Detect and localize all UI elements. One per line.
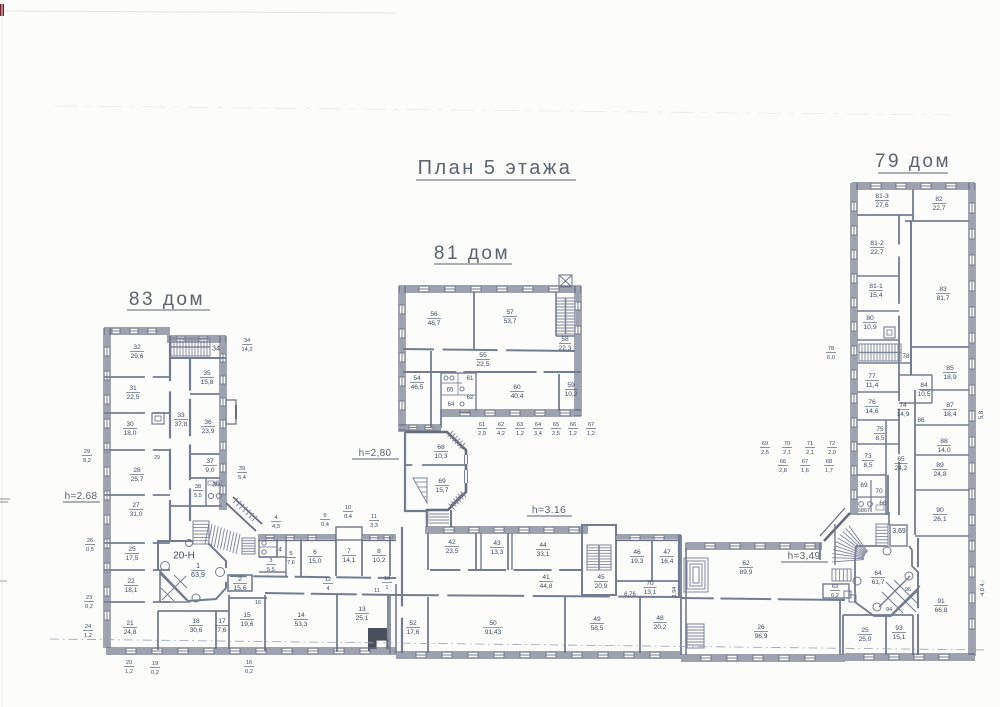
svg-text:73: 73	[864, 453, 872, 460]
svg-text:81,7: 81,7	[937, 295, 950, 302]
svg-text:76: 76	[868, 399, 876, 406]
svg-text:66: 66	[780, 459, 786, 465]
svg-text:25,7: 25,7	[131, 476, 144, 483]
svg-text:67: 67	[588, 422, 594, 428]
svg-text:2,9: 2,9	[478, 431, 486, 437]
svg-text:25: 25	[128, 546, 136, 553]
svg-text:10,2: 10,2	[373, 557, 386, 564]
svg-text:62: 62	[498, 422, 504, 428]
svg-text:82: 82	[935, 196, 943, 203]
svg-text:2: 2	[238, 576, 242, 583]
svg-text:50: 50	[489, 620, 497, 627]
svg-text:0,4: 0,4	[344, 514, 352, 520]
svg-text:6,2: 6,2	[831, 593, 839, 599]
svg-text:24,8: 24,8	[124, 629, 137, 636]
svg-text:24,2: 24,2	[895, 465, 908, 472]
svg-text:30: 30	[126, 421, 134, 428]
svg-text:44: 44	[539, 542, 547, 549]
svg-text:54: 54	[413, 375, 421, 382]
svg-text:8,5: 8,5	[875, 435, 884, 442]
svg-text:62: 62	[467, 395, 474, 401]
svg-text:20,2: 20,2	[654, 624, 667, 631]
svg-text:81-3: 81-3	[875, 193, 889, 200]
svg-text:2,0: 2,0	[828, 450, 836, 456]
svg-text:20-Н: 20-Н	[173, 551, 195, 562]
svg-text:7,6: 7,6	[217, 627, 226, 634]
svg-text:90: 90	[936, 507, 944, 514]
svg-text:22: 22	[127, 578, 135, 585]
svg-text:17,5: 17,5	[126, 555, 139, 562]
svg-text:46,7: 46,7	[428, 320, 441, 327]
svg-text:84: 84	[920, 382, 928, 389]
svg-text:2,1: 2,1	[783, 450, 791, 456]
svg-text:78: 78	[902, 353, 910, 360]
svg-text:4,0 4,-: 4,0 4,-	[980, 580, 986, 596]
svg-text:37,8: 37,8	[175, 421, 188, 428]
svg-text:49: 49	[593, 616, 601, 623]
svg-text:65: 65	[897, 456, 905, 463]
svg-text:26: 26	[757, 624, 765, 631]
svg-text:29: 29	[154, 455, 160, 461]
svg-text:68: 68	[437, 444, 445, 451]
svg-text:13: 13	[358, 606, 366, 613]
svg-text:91: 91	[937, 598, 945, 605]
svg-text:22,7: 22,7	[870, 249, 883, 256]
svg-text:5,5: 5,5	[267, 567, 275, 573]
svg-text:15: 15	[243, 612, 251, 619]
svg-text:61: 61	[467, 376, 474, 382]
svg-text:5,8: 5,8	[979, 410, 985, 419]
svg-text:3,3: 3,3	[370, 523, 378, 529]
svg-text:6: 6	[313, 549, 317, 556]
svg-text:24: 24	[85, 624, 91, 630]
svg-text:4,2: 4,2	[497, 431, 505, 437]
svg-text:h=3.16: h=3.16	[532, 504, 566, 516]
svg-text:1: 1	[385, 585, 388, 591]
svg-text:15,7: 15,7	[436, 487, 449, 494]
svg-text:20,9: 20,9	[595, 583, 608, 590]
svg-text:63: 63	[832, 584, 838, 590]
svg-text:46: 46	[633, 549, 641, 556]
svg-text:9: 9	[323, 513, 326, 519]
svg-text:0,2: 0,2	[85, 604, 93, 610]
svg-text:77: 77	[868, 373, 876, 380]
svg-text:8: 8	[377, 548, 381, 555]
svg-text:21: 21	[126, 620, 134, 627]
svg-text:1,2: 1,2	[84, 633, 92, 639]
svg-text:22,5: 22,5	[476, 361, 489, 368]
svg-text:1,6: 1,6	[801, 468, 809, 474]
svg-text:18,4: 18,4	[943, 411, 956, 418]
svg-text:План 5 этажа: План 5 этажа	[418, 157, 573, 179]
svg-text:28: 28	[133, 467, 141, 474]
svg-text:60: 60	[513, 384, 521, 391]
svg-text:26,1: 26,1	[933, 516, 946, 523]
svg-text:25: 25	[861, 627, 869, 634]
svg-text:15,0: 15,0	[309, 558, 322, 565]
svg-text:18,9: 18,9	[943, 374, 956, 381]
svg-text:1,7: 1,7	[825, 468, 833, 474]
svg-text:70: 70	[646, 580, 654, 587]
svg-text:85: 85	[946, 365, 954, 372]
svg-text:7,6: 7,6	[287, 560, 295, 566]
svg-text:25,0: 25,0	[859, 636, 872, 643]
svg-text:10: 10	[384, 576, 390, 582]
svg-text:22,5: 22,5	[127, 394, 140, 401]
svg-text:46,5: 46,5	[411, 384, 424, 391]
svg-text:71: 71	[807, 441, 813, 447]
svg-text:80: 80	[866, 315, 874, 322]
svg-text:16: 16	[246, 660, 252, 666]
svg-text:3,69: 3,69	[892, 528, 906, 535]
svg-text:1,2: 1,2	[516, 431, 524, 437]
svg-text:44,8: 44,8	[540, 583, 553, 590]
svg-text:12: 12	[325, 577, 331, 583]
svg-text:3: 3	[269, 558, 272, 564]
svg-text:18,1: 18,1	[125, 587, 138, 594]
svg-text:h=2,80: h=2,80	[359, 448, 392, 459]
svg-text:79 дом: 79 дом	[875, 151, 951, 172]
svg-text:1,2: 1,2	[587, 431, 595, 437]
svg-text:h=3,49: h=3,49	[788, 551, 821, 562]
svg-text:58: 58	[561, 336, 569, 343]
svg-text:13,1: 13,1	[644, 589, 657, 596]
svg-text:39: 39	[239, 466, 245, 472]
svg-text:64: 64	[535, 422, 541, 428]
svg-text:15,8: 15,8	[201, 379, 214, 386]
svg-text:48: 48	[656, 615, 664, 622]
svg-text:36: 36	[204, 419, 212, 426]
svg-text:53,3: 53,3	[295, 621, 308, 628]
svg-text:65: 65	[447, 388, 454, 394]
svg-text:34: 34	[212, 344, 220, 353]
svg-text:87: 87	[946, 402, 954, 409]
svg-text:42: 42	[448, 539, 456, 546]
svg-text:62: 62	[742, 560, 750, 567]
svg-text:45: 45	[597, 574, 605, 581]
svg-text:6,0: 6,0	[827, 355, 835, 361]
svg-text:70: 70	[875, 488, 883, 495]
svg-text:88: 88	[940, 438, 948, 445]
svg-text:10: 10	[345, 505, 351, 511]
svg-text:27,6: 27,6	[875, 202, 888, 209]
svg-text:93: 93	[895, 625, 903, 632]
svg-text:8,2: 8,2	[83, 458, 91, 464]
svg-text:7: 7	[347, 548, 351, 555]
svg-text:63: 63	[517, 422, 523, 428]
svg-text:10,3: 10,3	[434, 453, 447, 460]
svg-text:19: 19	[152, 661, 158, 667]
svg-text:14,6: 14,6	[865, 408, 878, 415]
svg-text:72: 72	[829, 441, 835, 447]
svg-text:0,2: 0,2	[245, 669, 253, 675]
svg-text:13,3: 13,3	[491, 549, 504, 556]
svg-text:25,1: 25,1	[356, 615, 369, 622]
svg-text:1,2: 1,2	[569, 431, 577, 437]
svg-text:14,2: 14,2	[241, 347, 252, 353]
svg-text:69: 69	[762, 441, 768, 447]
svg-text:83: 83	[939, 286, 947, 293]
svg-text:20: 20	[126, 660, 132, 666]
svg-text:2,1: 2,1	[806, 450, 814, 456]
svg-text:53,7: 53,7	[504, 318, 517, 325]
svg-text:63,9: 63,9	[191, 570, 205, 579]
svg-text:37: 37	[206, 458, 214, 465]
svg-text:6,76: 6,76	[624, 592, 636, 598]
svg-text:18: 18	[192, 618, 200, 625]
svg-text:23,5: 23,5	[446, 548, 459, 555]
svg-text:29,6: 29,6	[131, 353, 144, 360]
svg-text:78: 78	[828, 346, 834, 352]
svg-text:11,4: 11,4	[866, 382, 879, 389]
svg-text:56: 56	[430, 311, 438, 318]
svg-text:66: 66	[879, 500, 887, 507]
svg-text:15,4: 15,4	[869, 292, 882, 299]
svg-text:65: 65	[553, 422, 559, 428]
svg-text:64: 64	[874, 570, 882, 577]
svg-text:86: 86	[917, 417, 925, 424]
svg-text:0,2: 0,2	[151, 670, 159, 676]
svg-text:4: 4	[326, 586, 329, 592]
svg-text:0,5: 0,5	[86, 547, 94, 553]
svg-text:91,43: 91,43	[485, 629, 502, 636]
svg-text:16,4: 16,4	[661, 558, 674, 565]
svg-text:39: 39	[212, 482, 220, 489]
svg-text:40,4: 40,4	[511, 393, 524, 400]
svg-text:89: 89	[936, 462, 944, 469]
svg-text:31,0: 31,0	[130, 511, 143, 518]
svg-text:19,3: 19,3	[631, 558, 644, 565]
svg-text:15,6: 15,6	[233, 585, 246, 592]
svg-text:2,5: 2,5	[761, 450, 769, 456]
svg-text:75: 75	[876, 426, 884, 433]
svg-text:3,4: 3,4	[534, 431, 542, 437]
svg-text:38: 38	[195, 484, 201, 490]
svg-text:17,6: 17,6	[407, 629, 420, 636]
svg-text:6867: 6867	[858, 508, 870, 514]
svg-text:23: 23	[86, 595, 92, 601]
svg-text:47: 47	[663, 549, 671, 556]
svg-text:14: 14	[297, 612, 305, 619]
svg-text:14,9: 14,9	[897, 411, 910, 418]
svg-text:1,94: 1,94	[672, 587, 678, 598]
svg-text:31: 31	[129, 385, 137, 392]
svg-text:66,8: 66,8	[935, 607, 948, 614]
svg-text:89,9: 89,9	[740, 569, 753, 576]
svg-text:4: 4	[278, 547, 282, 554]
svg-text:27: 27	[132, 502, 140, 509]
svg-text:64: 64	[448, 402, 455, 408]
svg-text:81 дом: 81 дом	[434, 243, 510, 264]
svg-text:15,1: 15,1	[893, 634, 906, 641]
svg-text:h=2.68: h=2.68	[65, 491, 98, 502]
svg-text:30,6: 30,6	[190, 627, 203, 634]
svg-text:59: 59	[567, 382, 575, 389]
svg-text:18,0: 18,0	[124, 430, 137, 437]
svg-text:16: 16	[255, 600, 261, 606]
svg-text:9,0: 9,0	[205, 467, 214, 474]
svg-text:26: 26	[87, 538, 93, 544]
svg-text:14,1: 14,1	[343, 557, 356, 564]
svg-text:81-1: 81-1	[869, 283, 883, 290]
svg-text:83 дом: 83 дом	[129, 289, 205, 310]
svg-text:24,8: 24,8	[933, 471, 946, 478]
svg-text:74: 74	[899, 402, 907, 409]
svg-text:55: 55	[479, 352, 487, 359]
svg-text:10,2: 10,2	[565, 391, 578, 398]
svg-text:70: 70	[784, 441, 790, 447]
svg-text:23,9: 23,9	[202, 428, 215, 435]
svg-text:5: 5	[289, 551, 292, 557]
svg-text:22,7: 22,7	[933, 205, 946, 212]
svg-text:66: 66	[570, 422, 576, 428]
svg-text:41: 41	[542, 574, 550, 581]
svg-text:33: 33	[177, 412, 185, 419]
svg-text:67: 67	[802, 459, 808, 465]
svg-text:69: 69	[438, 478, 446, 485]
svg-text:10,9: 10,9	[863, 324, 876, 331]
svg-text:81-2: 81-2	[870, 240, 884, 247]
svg-text:61: 61	[479, 422, 485, 428]
svg-text:96: 96	[905, 587, 911, 593]
svg-text:10,5: 10,5	[918, 391, 931, 398]
svg-text:5,5: 5,5	[194, 493, 202, 499]
svg-text:33,1: 33,1	[537, 551, 550, 558]
svg-text:43: 43	[493, 540, 501, 547]
svg-text:19,6: 19,6	[241, 621, 254, 628]
svg-text:4,3: 4,3	[272, 524, 280, 530]
svg-text:4: 4	[274, 515, 277, 521]
svg-text:11: 11	[371, 514, 377, 520]
svg-text:2,8: 2,8	[779, 468, 787, 474]
svg-text:52: 52	[409, 620, 417, 627]
svg-text:17: 17	[218, 618, 226, 625]
svg-text:8,5: 8,5	[863, 462, 872, 469]
svg-text:96,9: 96,9	[755, 633, 768, 640]
svg-text:2,5: 2,5	[552, 431, 560, 437]
svg-text:68: 68	[826, 459, 832, 465]
svg-text:69: 69	[860, 482, 868, 489]
svg-text:57: 57	[506, 309, 514, 316]
svg-text:34: 34	[244, 338, 250, 344]
svg-text:0,4: 0,4	[321, 522, 329, 528]
svg-text:61,7: 61,7	[872, 579, 885, 586]
svg-text:1,2: 1,2	[125, 669, 133, 675]
svg-text:32: 32	[133, 344, 141, 351]
svg-text:14,0: 14,0	[937, 447, 950, 454]
svg-text:58,5: 58,5	[591, 625, 604, 632]
svg-text:5,4: 5,4	[238, 475, 246, 481]
svg-text:29: 29	[84, 449, 90, 455]
svg-text:94: 94	[886, 607, 892, 613]
svg-text:11: 11	[374, 588, 380, 594]
svg-text:35: 35	[203, 370, 211, 377]
